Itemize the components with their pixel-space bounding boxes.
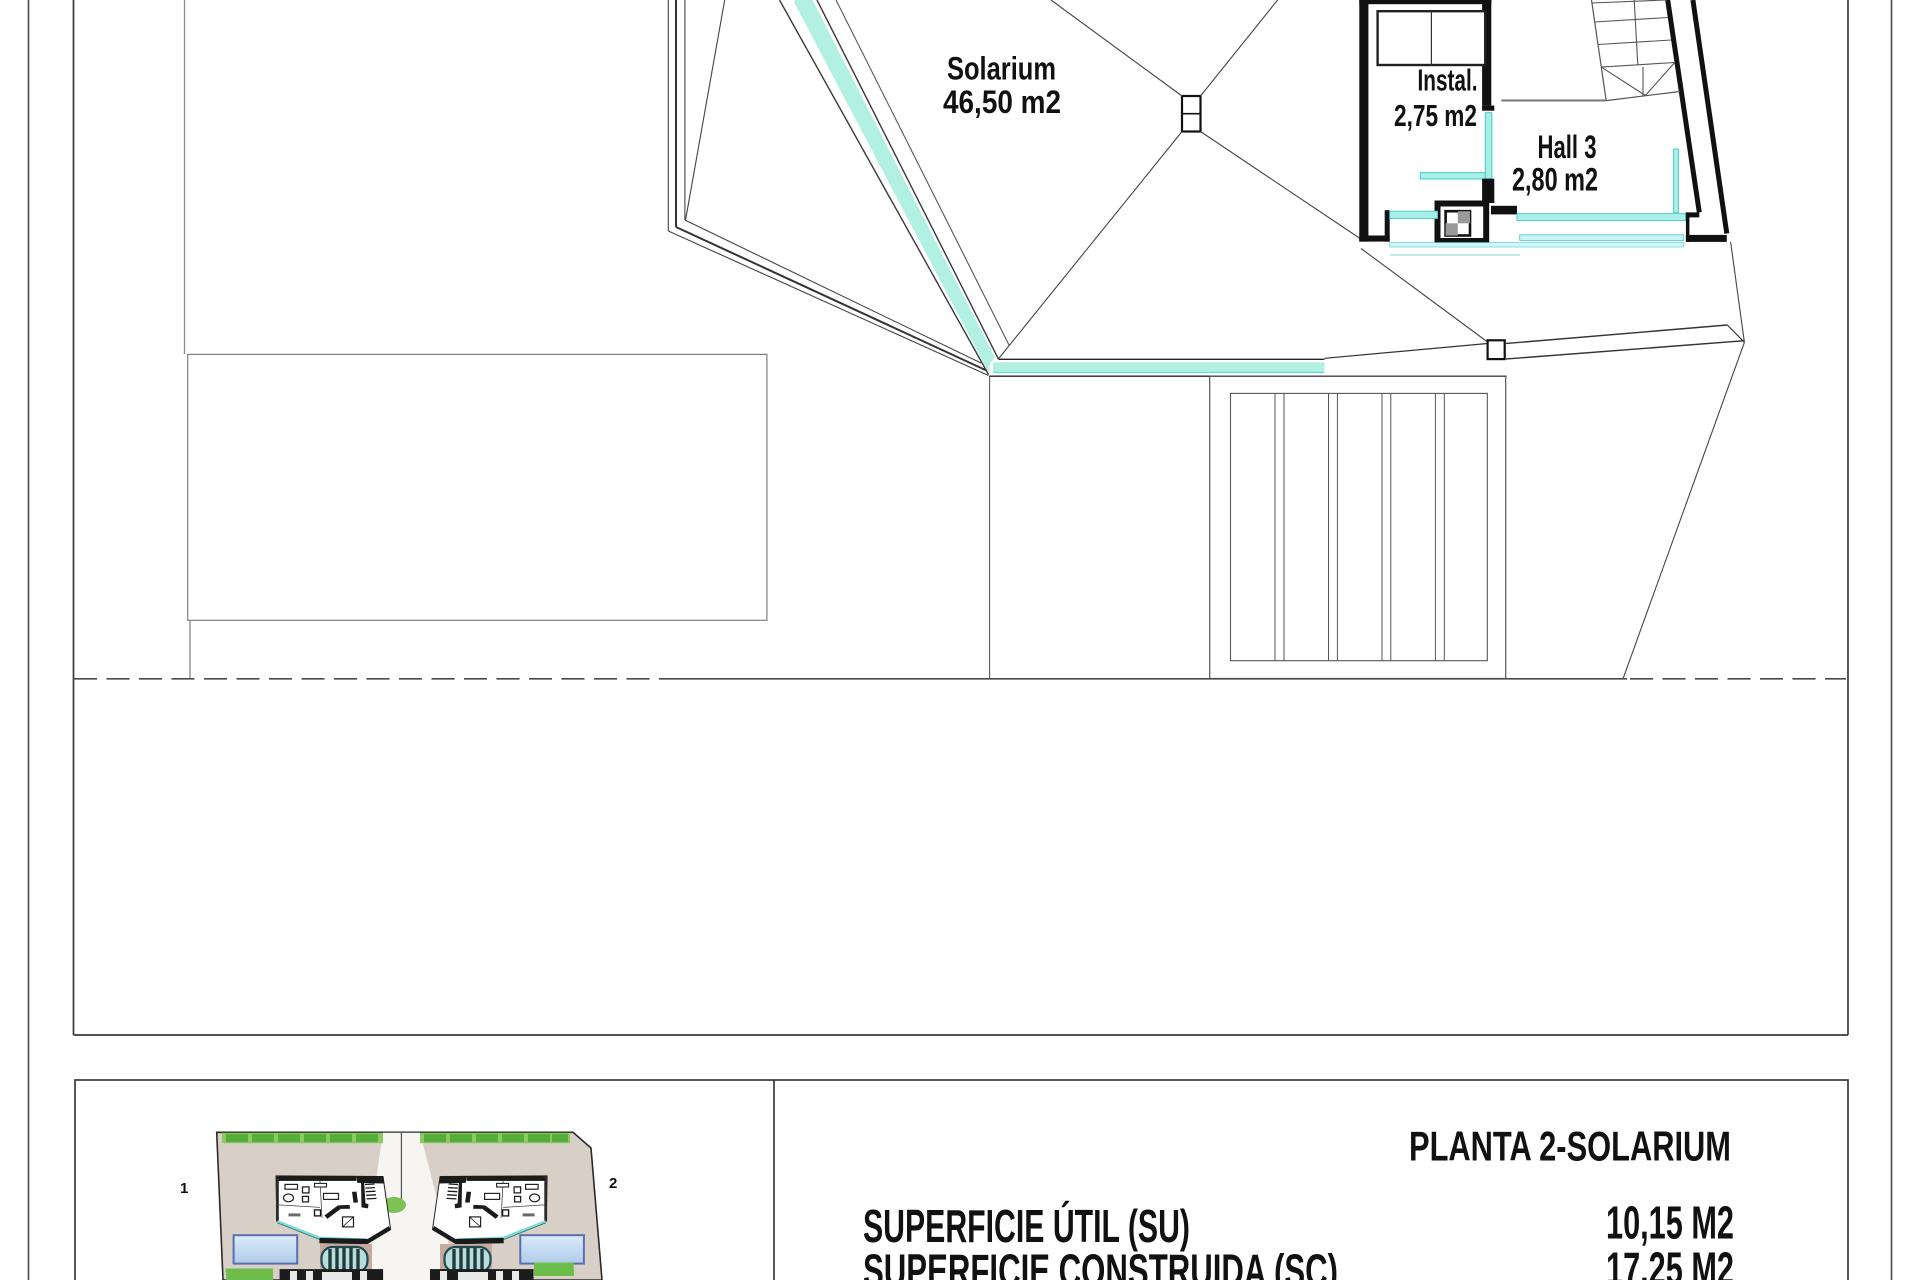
svg-text:Solarium: Solarium [947,50,1056,86]
svg-text:Hall 3: Hall 3 [1538,129,1597,165]
svg-text:10,15 M2: 10,15 M2 [1606,1197,1734,1249]
svg-text:46,50 m2: 46,50 m2 [943,84,1061,120]
svg-text:2: 2 [609,1175,617,1192]
svg-text:2,80 m2: 2,80 m2 [1512,162,1598,198]
svg-text:PLANTA 2-SOLARIUM: PLANTA 2-SOLARIUM [1409,1123,1731,1170]
svg-text:Instal.: Instal. [1418,62,1478,97]
svg-text:17,25 M2: 17,25 M2 [1606,1243,1734,1280]
svg-text:SUPERFICIE CONSTRUIDA (SC): SUPERFICIE CONSTRUIDA (SC) [863,1245,1338,1280]
svg-text:1: 1 [180,1180,188,1197]
svg-text:2,75 m2: 2,75 m2 [1394,98,1477,133]
